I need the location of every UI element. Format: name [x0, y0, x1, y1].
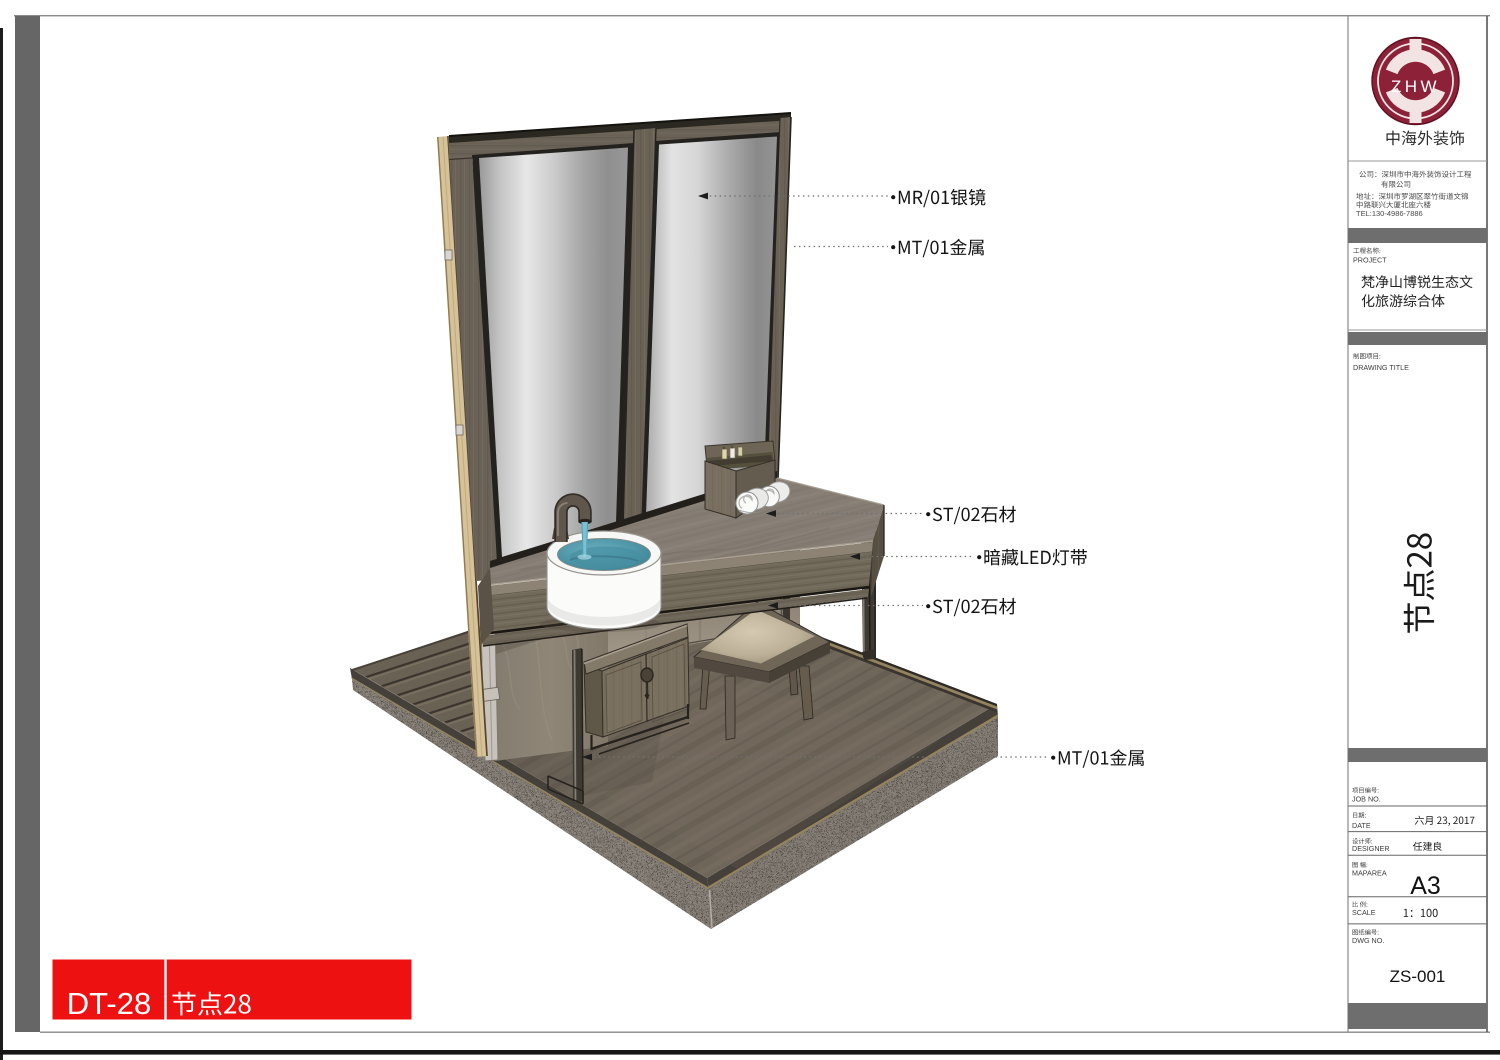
svg-text:ZS-001: ZS-001	[1390, 967, 1446, 986]
svg-text:MAPAREA: MAPAREA	[1352, 869, 1387, 878]
svg-text:DRAWING TITLE: DRAWING TITLE	[1353, 363, 1409, 372]
svg-text:SCALE: SCALE	[1352, 908, 1376, 917]
svg-text:DATE: DATE	[1352, 821, 1371, 830]
svg-text:PROJECT: PROJECT	[1353, 256, 1387, 265]
svg-text:TEL:130-4986-7886: TEL:130-4986-7886	[1356, 209, 1423, 218]
svg-text:ZHW: ZHW	[1391, 77, 1440, 96]
svg-text:DT-28: DT-28	[67, 986, 151, 1021]
svg-text:DESIGNER: DESIGNER	[1352, 844, 1390, 853]
svg-text:DWG NO.: DWG NO.	[1352, 936, 1384, 945]
svg-text:JOB NO.: JOB NO.	[1352, 795, 1381, 804]
svg-text:A3: A3	[1410, 872, 1441, 900]
